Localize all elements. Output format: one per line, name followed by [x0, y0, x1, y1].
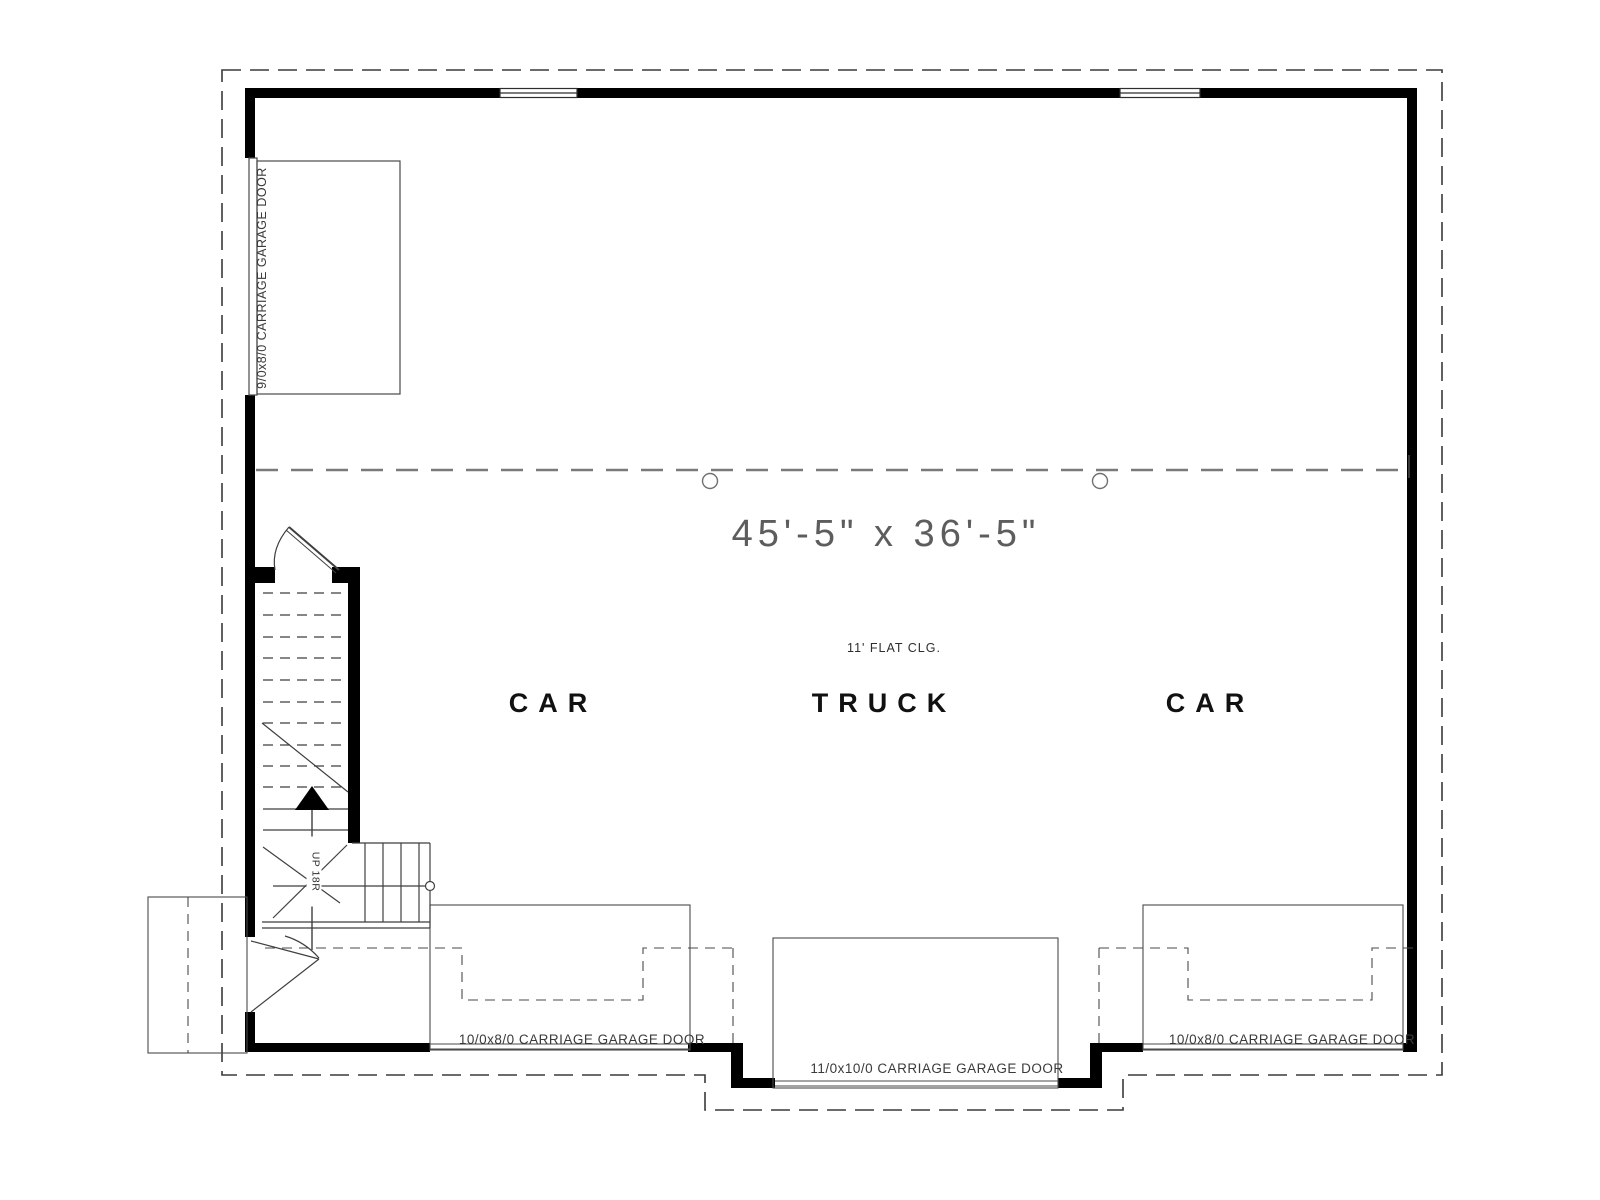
- floor-plan-drawing: [0, 0, 1600, 1200]
- entry-door: [251, 936, 319, 1012]
- left-wall-garage-door-label: 9/0x8/0 CARRIAGE GARAGE DOOR: [255, 148, 273, 408]
- window-left: [500, 89, 577, 98]
- garage-bay-right: [1099, 905, 1420, 1050]
- ceiling-height-label: 11' FLAT CLG.: [794, 641, 994, 655]
- bottom-center-garage-door-label: 11/0x10/0 CARRIAGE GARAGE DOOR: [777, 1061, 1097, 1076]
- newel-post-icon: [426, 882, 435, 891]
- stair-top-door: [274, 527, 339, 573]
- stair-direction-label: UP 18R: [307, 837, 322, 907]
- roof-overhang-outline: [222, 70, 1442, 1110]
- bottom-right-garage-door-label: 10/0x8/0 CARRIAGE GARAGE DOOR: [1142, 1032, 1442, 1047]
- bay-label-car-right: CAR: [1135, 688, 1285, 719]
- stoop: [148, 897, 247, 1053]
- ceiling-fixture-icon: [703, 474, 718, 489]
- ceiling-break-line: [256, 455, 1409, 489]
- bay-label-truck: TRUCK: [794, 688, 974, 719]
- bay-label-car-left: CAR: [478, 688, 628, 719]
- window-right: [1120, 89, 1200, 98]
- garage-bay-left: [265, 905, 733, 1050]
- room-dimension-label: 45'-5" x 36'-5": [686, 513, 1086, 556]
- floor-plan: 45'-5" x 36'-5" 11' FLAT CLG. CAR TRUCK …: [0, 0, 1600, 1200]
- ceiling-fixture-icon: [1093, 474, 1108, 489]
- bottom-left-garage-door-label: 10/0x8/0 CARRIAGE GARAGE DOOR: [432, 1032, 732, 1047]
